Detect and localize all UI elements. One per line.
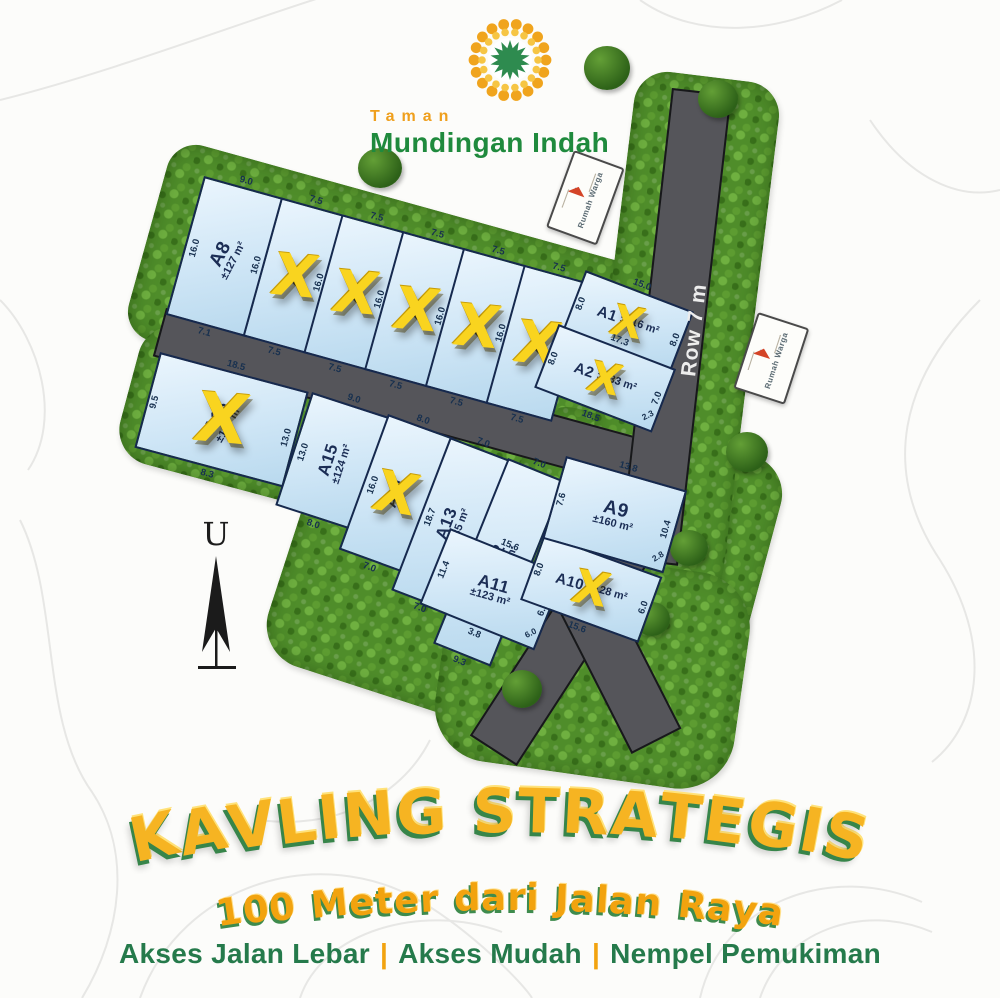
house-icon bbox=[757, 330, 776, 347]
plot-area-label: ±127 m² bbox=[219, 240, 248, 281]
bush bbox=[698, 80, 738, 118]
headline-title: KAVLING STRATEGIS bbox=[0, 776, 1000, 847]
plot-dim-corner: 2.8 bbox=[650, 549, 665, 564]
north-compass: U bbox=[190, 518, 242, 689]
brand-name-label: Mundingan Indah bbox=[370, 127, 650, 159]
plot-id-label: A11 bbox=[476, 571, 511, 596]
headline-subtitle: 100 Meter dari Jalan Raya bbox=[0, 876, 1000, 919]
tagline-separator: | bbox=[370, 938, 398, 969]
plot-dim-top: 7.5 bbox=[430, 227, 446, 241]
tagline-item: Akses Jalan Lebar bbox=[119, 938, 370, 969]
plot-area-label: ±124 m² bbox=[330, 443, 353, 485]
north-label: U bbox=[190, 518, 242, 550]
plot-dim-left: 13.0 bbox=[295, 441, 311, 462]
sold-x-mark: X bbox=[138, 366, 306, 473]
plot-dim-top: 7.5 bbox=[551, 261, 567, 275]
plot-dim-left: 16.0 bbox=[187, 238, 203, 259]
brand-top-label: Taman bbox=[370, 108, 650, 126]
flyer-canvas: Taman Mundingan Indah Row 7 m A8±127 m²9… bbox=[0, 0, 1000, 998]
plot-area-label: ±160 m² bbox=[591, 514, 633, 535]
bush bbox=[670, 530, 708, 566]
plot-id-label: A8 bbox=[206, 238, 235, 269]
plot-dim-left: 7.6 bbox=[554, 492, 568, 508]
plot-dim-top: 7.5 bbox=[490, 244, 506, 258]
plot-dim-top: 9.0 bbox=[238, 174, 254, 188]
bush bbox=[502, 670, 542, 708]
plot-id-label: A9 bbox=[601, 497, 630, 522]
plot-dim-top: 7.5 bbox=[308, 193, 324, 207]
house-icon bbox=[572, 168, 591, 186]
bush bbox=[726, 432, 768, 472]
brand-logo: Taman Mundingan Indah bbox=[370, 14, 650, 159]
sunflower-logo-icon bbox=[464, 14, 556, 106]
tagline-item: Akses Mudah bbox=[398, 938, 582, 969]
tagline: Akses Jalan Lebar|Akses Mudah|Nempel Pem… bbox=[0, 938, 1000, 970]
tagline-separator: | bbox=[582, 938, 610, 969]
plot-dim-corner: 6.0 bbox=[523, 626, 538, 640]
plot-dim-right: 10.4 bbox=[658, 519, 674, 540]
north-arrow-icon bbox=[190, 550, 242, 684]
tagline-item: Nempel Pemukiman bbox=[610, 938, 881, 969]
plot-area-label: ±123 m² bbox=[469, 587, 511, 609]
plot-dim-left: 18.7 bbox=[422, 507, 439, 528]
plot-id-label: A15 bbox=[315, 442, 342, 478]
plot-dim-left: 11.4 bbox=[435, 559, 452, 580]
plot-dim-top: 7.5 bbox=[369, 210, 385, 224]
